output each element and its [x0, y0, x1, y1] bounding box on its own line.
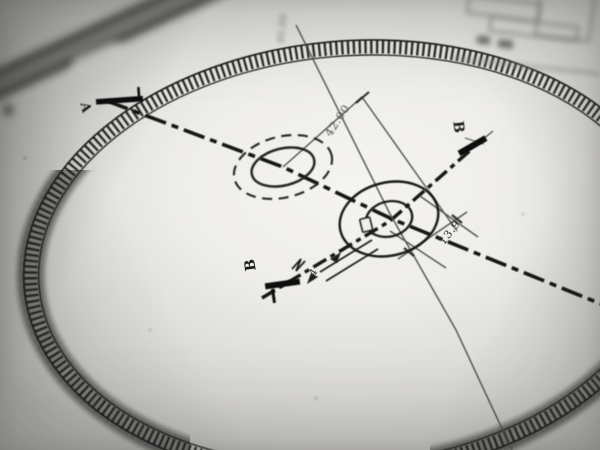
tick-b-lower-bar — [265, 279, 300, 290]
tick-b-upper-bar — [458, 135, 488, 156]
photo-of-technical-drawing: A B B 42.00 13.9 4 40.00 — [0, 0, 600, 450]
long-diagonal-line — [296, 25, 512, 450]
centerline-a-axis — [107, 101, 600, 304]
drawing-linework — [0, 0, 600, 450]
construction-lines — [283, 25, 512, 450]
keyway-notch-icon — [360, 217, 373, 232]
graduated-ring-blurred-near — [1, 9, 600, 450]
zigzag-break-icon — [292, 259, 305, 271]
section-label-b-lower: B — [243, 258, 259, 272]
section-label-b-upper: B — [450, 120, 465, 133]
tick-a-bar — [96, 96, 143, 105]
blurred-foreground-top-left — [0, 0, 228, 115]
paper-specks — [24, 157, 524, 399]
